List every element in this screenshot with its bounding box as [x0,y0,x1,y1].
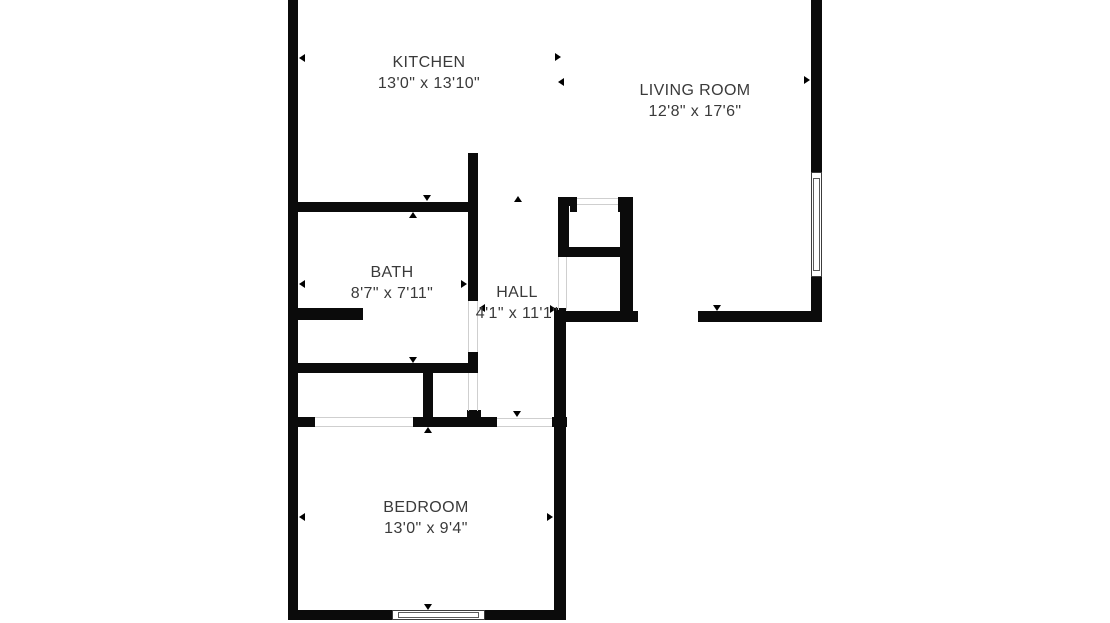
dim-arrow-living-west-icon [558,78,564,86]
dim-arrow-bath-west-icon [299,280,305,288]
room-label-kitchen: KITCHEN 13'0" x 13'10" [378,52,480,94]
room-dimensions: 13'0" x 13'10" [378,73,480,94]
dim-arrow-bedroom-south-icon [424,604,432,610]
lower-closet-opening-line [566,257,567,310]
dim-arrow-bath-north-icon [409,212,417,218]
wall-bedroom-top-right [552,417,567,427]
bedroom-window-glass [398,612,479,618]
bedroom-closet-opening-line [315,426,413,427]
room-name: BEDROOM [383,497,468,518]
dim-arrow-living-east-icon [804,76,810,84]
dim-arrow-bath-east-icon [461,280,467,288]
room-name: LIVING ROOM [639,80,750,101]
living-room-window [811,172,822,277]
room-label-living-room: LIVING ROOM 12'8" x 17'6" [639,80,750,122]
closet-corridor-line [468,373,469,411]
upper-closet-opening-line [577,204,618,205]
upper-closet-opening-line [577,198,618,199]
wall-closet-strip-divider [423,373,433,423]
dim-arrow-hall-north-icon [514,196,522,202]
wall-exterior-right-upper [811,0,822,173]
dim-arrow-kitchen-east-icon [555,53,561,61]
dim-arrow-living-south-icon [713,305,721,311]
floor-plan: KITCHEN 13'0" x 13'10" LIVING ROOM 12'8"… [0,0,1110,623]
room-dimensions: 4'1" x 11'1" [476,303,558,324]
room-name: KITCHEN [378,52,480,73]
dim-arrow-bedroom-east-icon [547,513,553,521]
room-name: BATH [351,262,433,283]
bedroom-window [392,610,485,620]
wall-east [554,308,566,620]
wall-hall-closet-top-left-return [570,197,577,212]
dim-arrow-bedroom-north-icon [424,427,432,433]
room-dimensions: 13'0" x 9'4" [383,518,468,539]
dim-arrow-bath-south-icon [409,357,417,363]
wall-bath-bottom [288,363,478,373]
wall-hall-closet-right [620,197,633,322]
living-room-window-glass [813,178,820,271]
dim-arrow-bedroom-west-icon [299,513,305,521]
wall-bedroom-top-mid [413,417,497,427]
bedroom-door-opening-line [497,426,552,427]
bedroom-door-opening-line [497,418,552,419]
bath-door-opening-line [468,301,469,352]
room-dimensions: 12'8" x 17'6" [639,101,750,122]
wall-bath-top [288,202,478,212]
room-label-bedroom: BEDROOM 13'0" x 9'4" [383,497,468,539]
wall-bath-inner-stub [288,308,363,320]
dim-arrow-hall-south-icon [513,411,521,417]
room-label-bath: BATH 8'7" x 7'11" [351,262,433,304]
wall-living-bottom-right [698,311,822,322]
dim-arrow-kitchen-south-icon [423,195,431,201]
wall-hall-closet-divider [558,247,633,257]
bedroom-closet-opening-line [315,417,413,418]
room-dimensions: 8'7" x 7'11" [351,283,433,304]
dim-arrow-kitchen-west-icon [299,54,305,62]
room-label-hall: HALL 4'1" x 11'1" [476,282,558,324]
wall-door-jamb-stub [467,410,481,417]
closet-corridor-line [477,373,478,411]
room-name: HALL [476,282,558,303]
wall-bedroom-top-left [288,417,315,427]
